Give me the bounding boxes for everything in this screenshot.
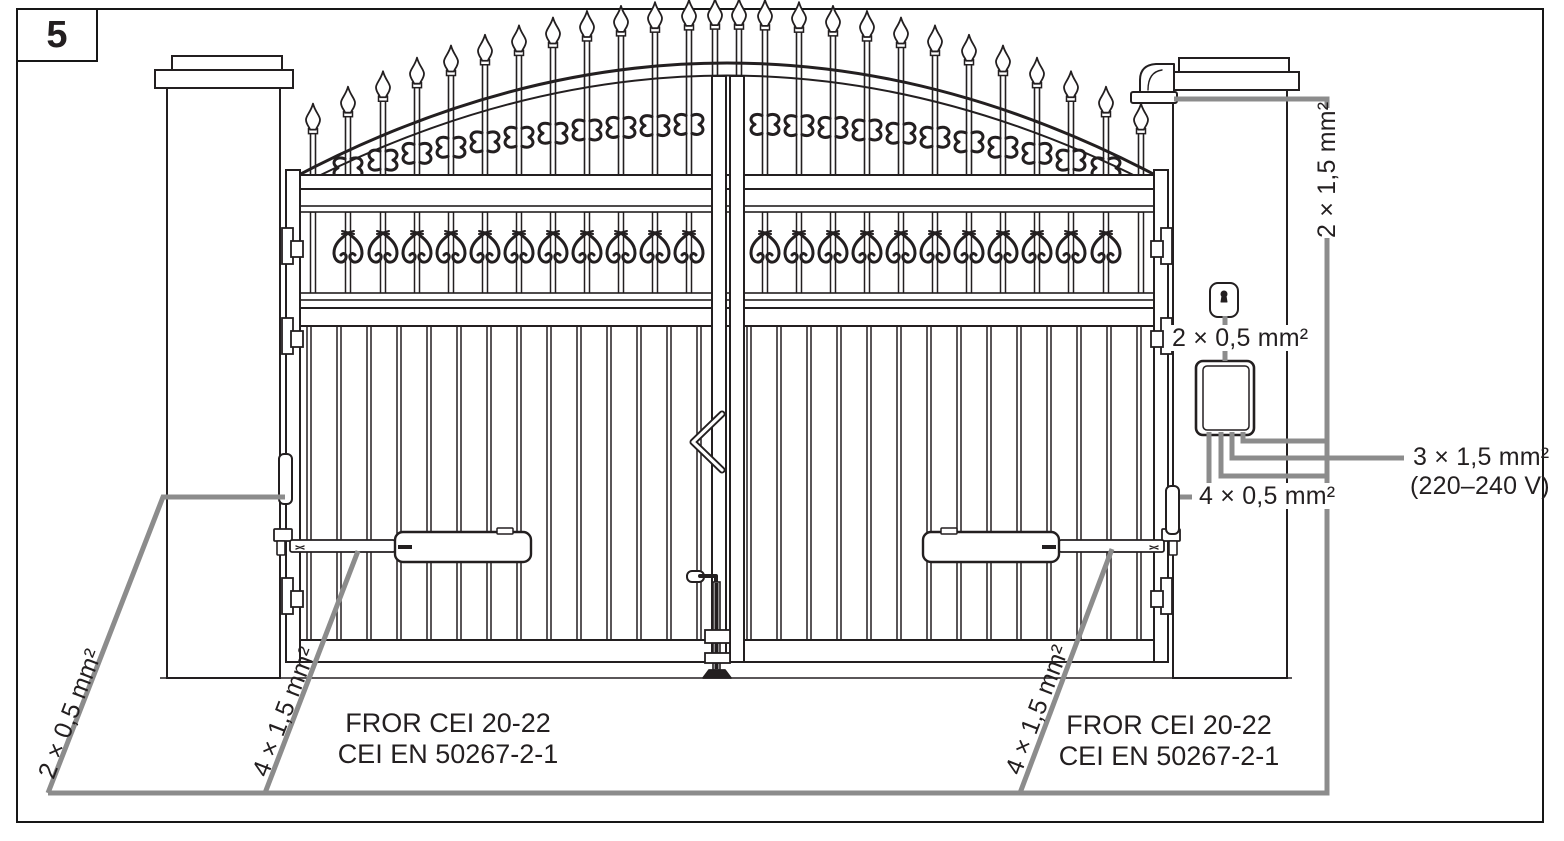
spear-tip-icon xyxy=(478,35,492,61)
motor-bracket-foot xyxy=(277,541,285,555)
right-pillar-cap-top xyxy=(1179,58,1289,72)
panel-board-edge xyxy=(577,327,581,639)
band-bar xyxy=(311,212,316,294)
gate-bar xyxy=(763,28,768,179)
spear-tip-icon xyxy=(306,104,320,130)
panel-board-edge xyxy=(987,327,991,639)
band-bar xyxy=(346,212,351,294)
cable-spec-left: FROR CEI 20-22 CEI EN 50267-2-1 xyxy=(320,708,576,770)
band-bar xyxy=(619,212,624,294)
band-bar xyxy=(797,212,802,294)
band-bar xyxy=(967,212,972,294)
spear-tip-icon xyxy=(546,17,560,43)
gate-bar xyxy=(517,53,522,179)
gate-bar xyxy=(831,34,836,179)
gate-bar xyxy=(899,45,904,179)
right-leaf-center-stile xyxy=(730,76,744,662)
band-bar xyxy=(763,212,768,294)
motor-bracket xyxy=(274,529,292,541)
hinge-knuckle xyxy=(1151,331,1163,347)
spear-tip-icon xyxy=(682,0,696,26)
control-unit-inner xyxy=(1203,366,1249,430)
panel-board-edge xyxy=(927,327,931,639)
motor-rod xyxy=(290,540,395,552)
panel-board-edge xyxy=(957,327,961,639)
power-voltage-label: (220–240 V) xyxy=(1410,473,1550,499)
spear-tip-icon xyxy=(826,6,840,32)
band-bar xyxy=(517,212,522,294)
spear-tip-icon xyxy=(341,87,355,113)
gate-bar xyxy=(933,53,938,179)
band-bar xyxy=(483,212,488,294)
left-pillar-cap-top xyxy=(172,56,282,70)
panel-board-edge xyxy=(517,327,521,639)
band-bar xyxy=(899,212,904,294)
band-bar xyxy=(933,212,938,294)
figure-number-box: 5 xyxy=(16,8,98,62)
panel-board-edge xyxy=(607,327,611,639)
band-bar xyxy=(687,212,692,294)
spear-tip-icon xyxy=(376,71,390,97)
gate-bar xyxy=(483,63,488,179)
key-switch xyxy=(1210,283,1238,317)
panel-board-edge xyxy=(307,327,311,639)
spear-tip-icon xyxy=(708,0,722,25)
flashing-lamp xyxy=(1131,64,1177,103)
power-cable-label: 3 × 1,5 mm² xyxy=(1413,444,1549,470)
gate-bar xyxy=(865,39,870,179)
spear-tip-icon xyxy=(1134,104,1148,130)
panel-board-edge xyxy=(367,327,371,639)
panel-board-edge xyxy=(837,327,841,639)
control-unit xyxy=(1196,361,1254,435)
motor-body-left xyxy=(395,532,531,562)
panel-board-edge xyxy=(1077,327,1081,639)
motor-body-right xyxy=(923,532,1059,562)
panel-board-edge xyxy=(457,327,461,639)
spear-tip-icon xyxy=(444,46,458,72)
band-bar xyxy=(1001,212,1006,294)
figure-page: 5 2 × 1,5 mm² 2 × 0,5 mm² 3 × 1,5 mm² (2… xyxy=(0,0,1564,841)
gate-bar xyxy=(1001,74,1006,179)
spear-tip-icon xyxy=(580,11,594,37)
panel-board-edge xyxy=(1047,327,1051,639)
gate-bar xyxy=(967,63,972,179)
gate-bar xyxy=(1139,132,1144,179)
band-bar xyxy=(1104,212,1109,294)
spear-tip-icon xyxy=(732,0,746,25)
cable-spec-right-line2: CEI EN 50267-2-1 xyxy=(1044,741,1294,772)
flasher-cable-label: 2 × 1,5 mm² xyxy=(1314,108,1340,238)
gate-bar xyxy=(585,39,590,179)
lamp-base xyxy=(1131,92,1177,103)
cable-spec-left-line1: FROR CEI 20-22 xyxy=(320,708,576,739)
gate-bar xyxy=(797,30,802,179)
spear-tip-icon xyxy=(512,25,526,51)
hinge-knuckle xyxy=(1151,241,1163,257)
panel-board-edge xyxy=(1017,327,1021,639)
panel-board-edge xyxy=(897,327,901,639)
spear-tip-icon xyxy=(1030,58,1044,84)
motor-detail xyxy=(941,528,957,534)
lamp-body xyxy=(1140,64,1174,92)
panel-board-edge xyxy=(427,327,431,639)
spear-tip-icon xyxy=(962,35,976,61)
spear-tip-icon xyxy=(1064,71,1078,97)
gate-bar xyxy=(1069,99,1074,179)
band-bar xyxy=(585,212,590,294)
band-bar xyxy=(653,212,658,294)
motor-bracket-foot xyxy=(1169,541,1177,555)
gate-bar xyxy=(653,30,658,179)
hinge-knuckle xyxy=(1151,591,1163,607)
spear-tip-icon xyxy=(894,17,908,43)
band-bar xyxy=(831,212,836,294)
keyswitch-cable-label: 2 × 0,5 mm² xyxy=(1169,325,1311,351)
band-bar xyxy=(415,212,420,294)
gate-bar xyxy=(687,28,692,179)
panel-board-edge xyxy=(487,327,491,639)
gate-bar xyxy=(311,132,316,179)
band-bar xyxy=(381,212,386,294)
spear-tip-icon xyxy=(614,6,628,32)
bolt-guide xyxy=(705,653,730,663)
hinge-knuckle xyxy=(291,331,303,347)
bolt-guide xyxy=(705,630,730,643)
panel-board-edge xyxy=(867,327,871,639)
figure-number: 5 xyxy=(46,14,67,57)
panel-board-edge xyxy=(747,327,751,639)
bolt-foot xyxy=(703,670,731,678)
panel-board-edge xyxy=(1107,327,1111,639)
panel-board-edge xyxy=(807,327,811,639)
hinge-knuckle xyxy=(291,241,303,257)
gate-bar xyxy=(1104,115,1109,179)
motor-detail xyxy=(497,528,513,534)
gate-bar xyxy=(449,74,454,179)
gate-bar xyxy=(381,99,386,179)
band-bar xyxy=(449,212,454,294)
band-bar xyxy=(865,212,870,294)
left-pillar-cap xyxy=(155,70,293,88)
panel-board-edge xyxy=(697,327,701,639)
left-pillar xyxy=(167,88,280,678)
photocell-right xyxy=(1166,486,1179,534)
right-pillar-cap xyxy=(1161,72,1299,90)
hinge-knuckle xyxy=(291,591,303,607)
gate-bar xyxy=(346,115,351,179)
band-bar xyxy=(1069,212,1074,294)
spear-tip-icon xyxy=(996,46,1010,72)
gate-bar xyxy=(619,34,624,179)
spear-tip-icon xyxy=(410,58,424,84)
gate-bar xyxy=(551,45,556,179)
spear-tip-icon xyxy=(928,25,942,51)
spear-tip-icon xyxy=(860,11,874,37)
panel-board-edge xyxy=(777,327,781,639)
panel-board-edge xyxy=(637,327,641,639)
band-bar xyxy=(1139,212,1144,294)
cable-spec-right: FROR CEI 20-22 CEI EN 50267-2-1 xyxy=(1044,710,1294,772)
panel-board-edge xyxy=(547,327,551,639)
panel-board-edge xyxy=(397,327,401,639)
panel-board-edge xyxy=(1137,327,1141,639)
key-switch-icon xyxy=(1221,296,1227,302)
spear-tip-icon xyxy=(648,2,662,28)
photocell-cable-label: 4 × 0,5 mm² xyxy=(1196,483,1338,509)
spear-tip-icon xyxy=(792,2,806,28)
cable-spec-right-line1: FROR CEI 20-22 xyxy=(1044,710,1294,741)
band-bar xyxy=(551,212,556,294)
band-bar xyxy=(1035,212,1040,294)
spear-tip-icon xyxy=(1099,87,1113,113)
spear-tip-icon xyxy=(758,0,772,26)
cable-spec-left-line2: CEI EN 50267-2-1 xyxy=(320,739,576,770)
panel-board-edge xyxy=(667,327,671,639)
